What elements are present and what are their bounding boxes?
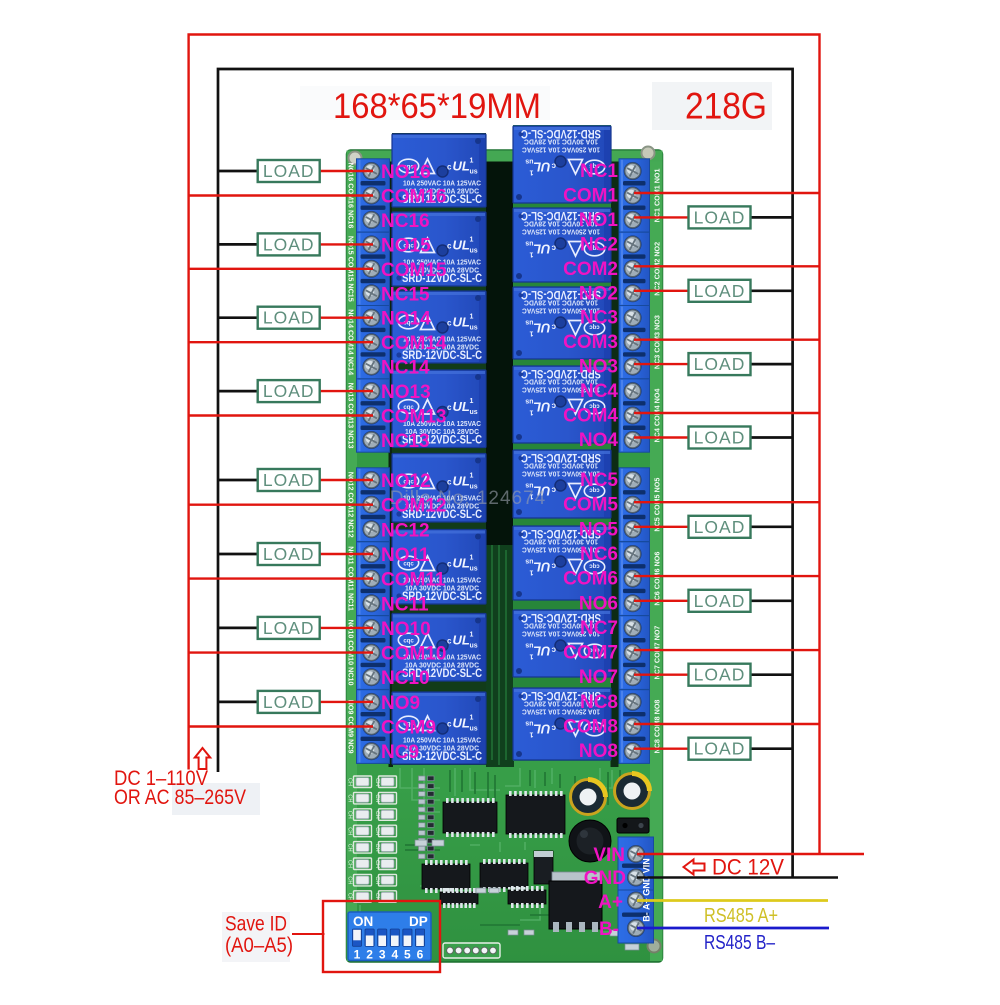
svg-text:NC3 COM3 NO3: NC3 COM3 NO3 (653, 315, 662, 369)
svg-text:NC9: NC9 (381, 742, 419, 763)
svg-text:LOAD: LOAD (694, 281, 746, 301)
svg-text:NC14: NC14 (381, 358, 430, 379)
svg-text:us: us (470, 248, 478, 255)
svg-text:UL: UL (533, 644, 550, 659)
svg-text:NC4: NC4 (580, 381, 618, 402)
svg-text:NO6: NO6 (579, 593, 618, 614)
svg-text:LOAD: LOAD (263, 692, 315, 712)
svg-text:CH: CH (374, 811, 380, 819)
svg-text:LOAD: LOAD (694, 354, 746, 374)
svg-text:RS485 B–: RS485 B– (704, 932, 776, 954)
svg-text:1: 1 (470, 314, 474, 321)
svg-text:c: c (447, 319, 452, 328)
svg-text:1: 1 (470, 237, 474, 244)
svg-text:CH: CH (374, 893, 380, 901)
svg-text:1: 1 (470, 158, 474, 165)
svg-text:c: c (551, 486, 556, 495)
svg-text:A+: A+ (598, 892, 623, 913)
svg-text:LOAD: LOAD (263, 234, 315, 254)
svg-text:2: 2 (366, 948, 373, 962)
svg-text:CH: CH (347, 778, 353, 786)
svg-text:UL: UL (533, 400, 550, 415)
svg-text:Save ID: Save ID (225, 913, 287, 936)
svg-text:NC6: NC6 (580, 544, 618, 565)
svg-text:CH: CH (374, 860, 380, 868)
svg-text:NC12: NC12 (381, 520, 430, 541)
svg-text:COM5: COM5 (563, 495, 618, 516)
svg-text:CH: CH (347, 893, 353, 901)
svg-text:us: us (470, 726, 478, 733)
svg-text:UL: UL (453, 159, 470, 174)
svg-text:1: 1 (470, 555, 474, 562)
svg-text:218G: 218G (685, 86, 767, 127)
svg-text:1: 1 (470, 398, 474, 405)
svg-text:COM12: COM12 (381, 496, 446, 517)
svg-text:NC1: NC1 (580, 161, 618, 182)
svg-text:1: 1 (530, 731, 534, 738)
svg-text:CH: CH (347, 811, 353, 819)
svg-text:UL: UL (453, 556, 470, 571)
svg-text:DP: DP (409, 914, 428, 929)
svg-text:c: c (447, 403, 452, 412)
svg-text:NO10: NO10 (381, 619, 431, 640)
svg-text:COM6: COM6 (563, 569, 618, 590)
svg-text:5: 5 (404, 948, 411, 962)
svg-text:RS485 A+: RS485 A+ (704, 905, 778, 927)
svg-text:NO9: NO9 (381, 693, 420, 714)
svg-text:us: us (525, 558, 533, 565)
svg-text:NO12: NO12 (381, 471, 431, 492)
svg-text:UL: UL (453, 716, 470, 731)
svg-text:COM1: COM1 (563, 186, 618, 207)
svg-text:ON: ON (353, 914, 373, 929)
svg-text:1: 1 (470, 715, 474, 722)
svg-text:UL: UL (533, 160, 550, 175)
svg-text:NC16: NC16 (381, 211, 430, 232)
svg-text:LOAD: LOAD (694, 665, 746, 685)
svg-text:us: us (525, 319, 533, 326)
svg-text:COM9: COM9 (381, 718, 436, 739)
svg-text:NC8: NC8 (580, 692, 618, 713)
svg-text:LOAD: LOAD (694, 517, 746, 537)
svg-text:1: 1 (530, 169, 534, 176)
svg-text:UL: UL (533, 722, 550, 737)
svg-text:NC6 COM6 NO6: NC6 COM6 NO6 (653, 552, 662, 606)
svg-text:NC4 COM4 NO4: NC4 COM4 NO4 (653, 389, 662, 443)
svg-text:CH: CH (374, 876, 380, 884)
svg-text:c: c (551, 402, 556, 411)
svg-text:VIN: VIN (593, 845, 625, 866)
svg-text:CH: CH (374, 844, 380, 852)
svg-text:168*65*19MM: 168*65*19MM (333, 87, 541, 126)
svg-text:COM4: COM4 (563, 406, 618, 427)
svg-text:UL: UL (453, 315, 470, 330)
svg-text:NO1: NO1 (579, 210, 619, 231)
svg-text:CH: CH (374, 827, 380, 835)
svg-text:c: c (447, 720, 452, 729)
svg-text:c: c (551, 244, 556, 253)
svg-text:us: us (525, 642, 533, 649)
svg-text:LOAD: LOAD (263, 308, 315, 328)
svg-text:UL: UL (453, 399, 470, 414)
svg-text:NC1 COM1 NO1: NC1 COM1 NO1 (653, 168, 662, 222)
svg-text:NC11: NC11 (381, 594, 429, 615)
svg-text:COM11: COM11 (381, 570, 446, 591)
svg-text:us: us (470, 643, 478, 650)
svg-text:1: 1 (470, 632, 474, 639)
svg-text:NC2 COM2 NO2: NC2 COM2 NO2 (653, 242, 662, 296)
svg-text:1: 1 (530, 409, 534, 416)
svg-text:1: 1 (354, 948, 361, 962)
svg-text:DC 12V: DC 12V (712, 855, 784, 880)
svg-text:us: us (525, 240, 533, 247)
svg-text:LOAD: LOAD (263, 544, 315, 564)
svg-text:us: us (470, 169, 478, 176)
svg-text:COM15: COM15 (381, 260, 447, 281)
svg-text:NC7 COM7 NO7: NC7 COM7 NO7 (653, 626, 662, 680)
svg-text:SRD-12VDC-SL-C: SRD-12VDC-SL-C (521, 451, 601, 463)
svg-text:LOAD: LOAD (694, 739, 746, 759)
svg-text:10A 250VAC 10A 125VAC: 10A 250VAC 10A 125VAC (522, 146, 600, 153)
svg-text:(A0–A5): (A0–A5) (225, 934, 293, 957)
svg-text:CH: CH (347, 860, 353, 868)
svg-text:UL: UL (533, 560, 550, 575)
svg-text:us: us (470, 409, 478, 416)
svg-text:NC7: NC7 (580, 618, 618, 639)
svg-text:NO7: NO7 (579, 667, 618, 688)
svg-text:COM7: COM7 (563, 643, 618, 664)
svg-text:LOAD: LOAD (694, 428, 746, 448)
svg-text:NO14: NO14 (381, 309, 431, 330)
svg-text:UL: UL (453, 474, 470, 489)
svg-text:CH: CH (347, 794, 353, 802)
svg-text:SRD-12VDC-SL-C: SRD-12VDC-SL-C (521, 127, 601, 139)
svg-text:1: 1 (530, 330, 534, 337)
svg-text:c: c (447, 560, 452, 569)
svg-text:COM2: COM2 (563, 259, 618, 280)
svg-text:NO4: NO4 (579, 430, 619, 451)
svg-text:NC10: NC10 (381, 668, 430, 689)
svg-text:us: us (525, 398, 533, 405)
svg-text:c: c (447, 478, 452, 487)
svg-text:UL: UL (453, 633, 470, 648)
svg-text:NO3: NO3 (579, 357, 618, 378)
svg-text:NC13: NC13 (381, 431, 430, 452)
svg-text:NO15: NO15 (381, 235, 431, 256)
svg-text:B- A+ GND VIN: B- A+ GND VIN (642, 858, 652, 921)
svg-text:c: c (447, 637, 452, 646)
svg-text:NC5 COM5 NO5: NC5 COM5 NO5 (653, 478, 662, 532)
svg-text:UL: UL (533, 321, 550, 336)
svg-text:c: c (551, 646, 556, 655)
svg-text:NC15: NC15 (381, 284, 430, 305)
svg-text:CH: CH (347, 827, 353, 835)
svg-text:us: us (525, 158, 533, 165)
svg-text:1: 1 (470, 473, 474, 480)
svg-text:c: c (551, 724, 556, 733)
svg-text:LOAD: LOAD (263, 161, 315, 181)
svg-text:c: c (447, 163, 452, 172)
svg-text:NO11: NO11 (381, 545, 430, 566)
svg-text:COM10: COM10 (381, 644, 446, 665)
svg-text:c: c (551, 562, 556, 571)
svg-text:COM8: COM8 (563, 717, 618, 738)
svg-text:1: 1 (530, 653, 534, 660)
svg-text:us: us (470, 566, 478, 573)
svg-text:CH: CH (374, 794, 380, 802)
svg-text:NO5: NO5 (579, 519, 619, 540)
svg-text:1: 1 (530, 569, 534, 576)
svg-text:LOAD: LOAD (694, 591, 746, 611)
svg-text:CH: CH (347, 876, 353, 884)
svg-text:1: 1 (530, 251, 534, 258)
svg-text:LOAD: LOAD (263, 470, 315, 490)
svg-text:us: us (470, 325, 478, 332)
svg-text:LOAD: LOAD (694, 207, 746, 227)
svg-text:NO16: NO16 (381, 162, 431, 183)
svg-text:4: 4 (391, 948, 398, 962)
svg-text:UL: UL (453, 238, 470, 253)
svg-text:CH: CH (347, 844, 353, 852)
svg-text:c: c (551, 162, 556, 171)
svg-text:NC3: NC3 (580, 308, 618, 329)
svg-text:NC8 COM8 NO8: NC8 COM8 NO8 (653, 700, 662, 754)
svg-text:COM3: COM3 (563, 332, 618, 353)
svg-text:NO8: NO8 (579, 741, 618, 762)
svg-text:COM14: COM14 (381, 333, 447, 354)
svg-text:NO2: NO2 (579, 283, 618, 304)
svg-text:B-: B- (599, 919, 619, 940)
svg-text:LOAD: LOAD (263, 618, 315, 638)
svg-text:OR AC 85–265V: OR AC 85–265V (114, 786, 246, 809)
svg-text:us: us (525, 720, 533, 727)
svg-text:COM16: COM16 (381, 187, 446, 208)
svg-text:c: c (447, 242, 452, 251)
svg-text:COM13: COM13 (381, 407, 446, 428)
svg-text:3: 3 (379, 948, 386, 962)
svg-text:c: c (551, 323, 556, 332)
svg-text:UL: UL (533, 242, 550, 257)
svg-text:CH: CH (374, 778, 380, 786)
svg-text:NC2: NC2 (580, 234, 618, 255)
svg-text:GND: GND (584, 868, 626, 889)
svg-text:NO13: NO13 (381, 382, 431, 403)
svg-text:LOAD: LOAD (263, 381, 315, 401)
svg-text:6: 6 (417, 948, 424, 962)
svg-text:NC5: NC5 (580, 470, 618, 491)
